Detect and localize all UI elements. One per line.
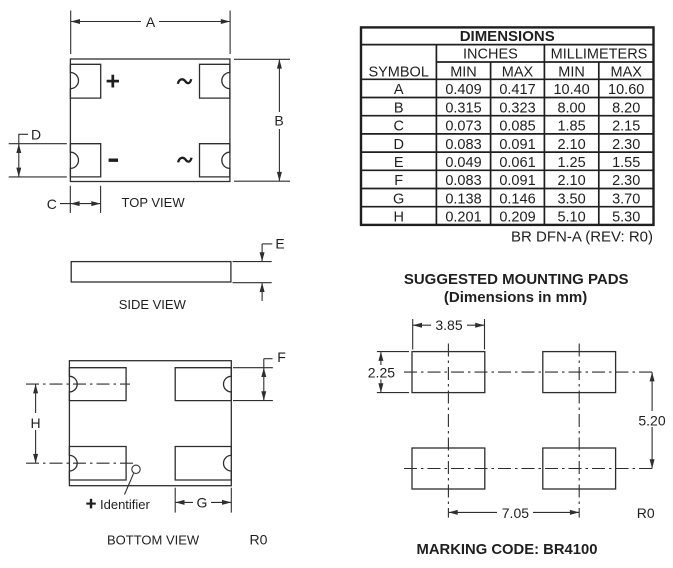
svg-text:H: H xyxy=(393,210,403,226)
svg-text:0.091: 0.091 xyxy=(499,173,535,189)
svg-text:BOTTOM VIEW: BOTTOM VIEW xyxy=(107,532,200,547)
svg-text:0.091: 0.091 xyxy=(499,137,535,153)
svg-text:E: E xyxy=(394,155,404,171)
svg-text:B: B xyxy=(274,112,283,128)
svg-text:SYMBOL: SYMBOL xyxy=(368,64,428,80)
svg-text:0.138: 0.138 xyxy=(445,191,481,207)
svg-text:1.55: 1.55 xyxy=(612,155,640,171)
svg-text:DIMENSIONS: DIMENSIONS xyxy=(460,28,555,45)
svg-text:0.083: 0.083 xyxy=(445,173,481,189)
svg-text:0.323: 0.323 xyxy=(499,100,535,116)
svg-text:R0: R0 xyxy=(250,531,268,547)
svg-text:D: D xyxy=(31,126,41,142)
svg-text:D: D xyxy=(393,137,403,153)
svg-text:SIDE VIEW: SIDE VIEW xyxy=(119,297,187,312)
svg-text:MAX: MAX xyxy=(502,64,534,80)
svg-text:5.20: 5.20 xyxy=(638,413,665,429)
svg-text:0.073: 0.073 xyxy=(445,119,481,135)
svg-text:INCHES: INCHES xyxy=(463,47,518,63)
svg-text:R0: R0 xyxy=(637,505,655,521)
svg-text:1.85: 1.85 xyxy=(557,119,585,135)
svg-text:2.10: 2.10 xyxy=(557,137,585,153)
svg-text:(Dimensions in mm): (Dimensions in mm) xyxy=(444,289,587,306)
svg-text:3.85: 3.85 xyxy=(435,317,462,333)
svg-text:MIN: MIN xyxy=(450,64,477,80)
svg-text:7.05: 7.05 xyxy=(502,505,529,521)
svg-text:Identifier: Identifier xyxy=(100,497,151,512)
svg-text:C: C xyxy=(47,196,57,212)
svg-text:0.409: 0.409 xyxy=(445,82,481,98)
svg-text:5.10: 5.10 xyxy=(557,210,585,226)
svg-text:0.209: 0.209 xyxy=(499,210,535,226)
svg-text:10.60: 10.60 xyxy=(608,82,644,98)
svg-text:A: A xyxy=(146,14,156,30)
svg-text:0.085: 0.085 xyxy=(499,119,535,135)
svg-text:3.70: 3.70 xyxy=(612,191,640,207)
svg-text:B: B xyxy=(394,100,404,116)
svg-text:0.083: 0.083 xyxy=(445,137,481,153)
svg-text:8.20: 8.20 xyxy=(612,100,640,116)
svg-text:G: G xyxy=(393,191,404,207)
svg-text:G: G xyxy=(197,494,208,510)
svg-text:8.00: 8.00 xyxy=(557,100,585,116)
svg-text:1.25: 1.25 xyxy=(557,155,585,171)
svg-text:5.30: 5.30 xyxy=(612,210,640,226)
svg-text:MAX: MAX xyxy=(610,64,642,80)
svg-text:0.049: 0.049 xyxy=(445,155,481,171)
svg-text:E: E xyxy=(275,236,284,252)
svg-text:SUGGESTED MOUNTING PADS: SUGGESTED MOUNTING PADS xyxy=(404,271,629,288)
svg-text:MILLIMETERS: MILLIMETERS xyxy=(551,47,648,63)
svg-text:2.10: 2.10 xyxy=(557,173,585,189)
svg-text:MARKING CODE: BR4100: MARKING CODE: BR4100 xyxy=(417,542,598,558)
svg-text:C: C xyxy=(393,119,403,135)
svg-text:0.201: 0.201 xyxy=(445,210,481,226)
svg-text:A: A xyxy=(394,82,404,98)
svg-text:0.146: 0.146 xyxy=(499,191,535,207)
svg-text:F: F xyxy=(277,349,286,365)
svg-text:2.15: 2.15 xyxy=(612,119,640,135)
svg-text:2.30: 2.30 xyxy=(612,173,640,189)
svg-text:BR DFN-A (REV: R0): BR DFN-A (REV: R0) xyxy=(511,229,653,246)
svg-text:H: H xyxy=(31,415,41,431)
svg-text:2.30: 2.30 xyxy=(612,137,640,153)
svg-text:0.061: 0.061 xyxy=(499,155,535,171)
svg-text:TOP VIEW: TOP VIEW xyxy=(122,195,186,210)
svg-text:3.50: 3.50 xyxy=(557,191,585,207)
svg-text:2.25: 2.25 xyxy=(368,364,395,380)
svg-text:F: F xyxy=(394,173,403,189)
svg-text:MIN: MIN xyxy=(558,64,585,80)
svg-text:0.417: 0.417 xyxy=(499,82,535,98)
svg-text:0.315: 0.315 xyxy=(445,100,481,116)
svg-text:10.40: 10.40 xyxy=(553,82,589,98)
